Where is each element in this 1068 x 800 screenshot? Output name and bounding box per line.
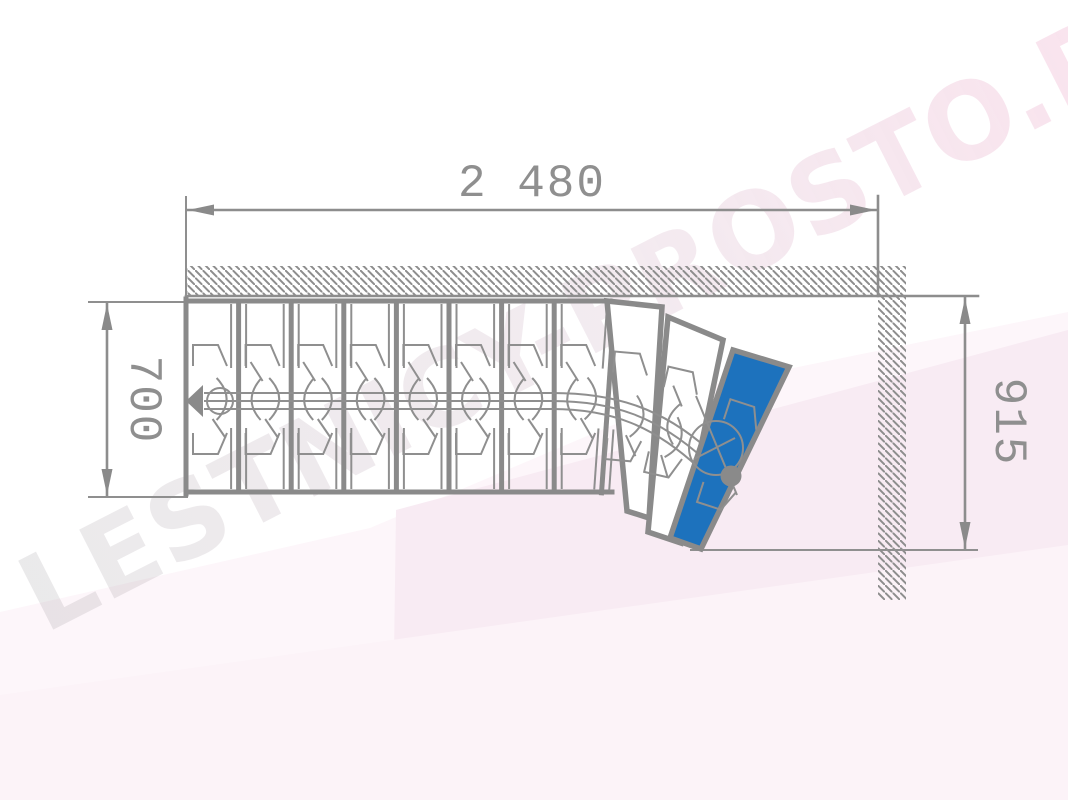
riser-4 bbox=[370, 301, 420, 492]
dim-arrow-left bbox=[188, 205, 214, 216]
stair-plan-drawing: 2 480 700 915 bbox=[0, 0, 1068, 800]
dimension-flight-width-label: 700 bbox=[117, 356, 169, 445]
pivot-point-dot bbox=[721, 466, 742, 487]
riser-5 bbox=[423, 301, 473, 492]
dimension-flight-width: 700 bbox=[88, 302, 188, 497]
top-wall bbox=[186, 266, 978, 296]
dim-arrow-up2 bbox=[960, 298, 971, 324]
riser-3 bbox=[318, 301, 368, 492]
dimension-turn-width-label: 915 bbox=[982, 378, 1034, 467]
direction-arrow bbox=[186, 385, 203, 417]
right-wall bbox=[878, 196, 906, 600]
dim-arrow-down2 bbox=[960, 522, 971, 548]
straight-flight bbox=[186, 299, 639, 494]
dim-arrow-down bbox=[102, 469, 113, 495]
riser-2 bbox=[265, 301, 315, 492]
dim-arrow-right bbox=[850, 205, 876, 216]
dim-arrow-up bbox=[102, 304, 113, 330]
stair-plan-canvas: LESTNICY-PROSTO.RU bbox=[0, 0, 1068, 800]
dimension-total-length-label: 2 480 bbox=[458, 158, 606, 210]
riser-1 bbox=[213, 301, 263, 492]
riser-6 bbox=[476, 301, 526, 492]
riser-7 bbox=[528, 301, 578, 492]
